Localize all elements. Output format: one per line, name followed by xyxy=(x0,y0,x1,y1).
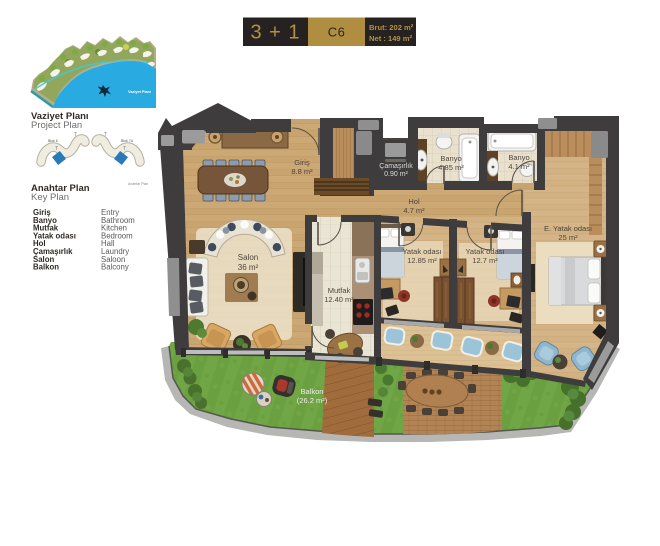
svg-text:Brut: 202 m²: Brut: 202 m² xyxy=(369,23,414,32)
svg-text:Balcony: Balcony xyxy=(101,263,129,272)
svg-text:Project Plan: Project Plan xyxy=(31,120,82,131)
svg-text:Mutfak: Mutfak xyxy=(328,286,351,295)
svg-text:Balkon: Balkon xyxy=(33,263,59,272)
svg-text:T: T xyxy=(104,132,107,138)
svg-text:T: T xyxy=(74,132,77,138)
svg-text:Vaziyet Planı: Vaziyet Planı xyxy=(128,90,151,94)
svg-text:25 m²: 25 m² xyxy=(558,233,578,242)
svg-text:Balkon: Balkon xyxy=(301,387,324,396)
svg-text:T: T xyxy=(123,146,126,152)
svg-text:8.8 m²: 8.8 m² xyxy=(291,167,313,176)
svg-text:(26.2 m²): (26.2 m²) xyxy=(297,396,328,405)
svg-text:T: T xyxy=(55,146,58,152)
svg-text:36 m²: 36 m² xyxy=(238,263,259,272)
svg-text:Yatak odası: Yatak odası xyxy=(465,247,504,256)
svg-text:4.85 m²: 4.85 m² xyxy=(438,163,464,172)
svg-text:C6: C6 xyxy=(328,25,346,40)
svg-text:Çamaşırlık: Çamaşırlık xyxy=(379,163,413,170)
svg-text:Key Plan: Key Plan xyxy=(31,192,69,203)
svg-text:Anahtar Plan: Anahtar Plan xyxy=(128,182,148,186)
svg-text:E. Yatak odası: E. Yatak odası xyxy=(544,224,592,233)
svg-text:Salon: Salon xyxy=(238,253,258,262)
svg-text:Giriş: Giriş xyxy=(294,158,310,167)
svg-text:0.90 m²: 0.90 m² xyxy=(384,171,408,178)
svg-text:4.1 m²: 4.1 m² xyxy=(508,162,530,171)
svg-text:12.85 m²: 12.85 m² xyxy=(407,256,437,265)
svg-text:Blok 7A: Blok 7A xyxy=(121,139,134,143)
svg-text:Hol: Hol xyxy=(408,197,420,206)
svg-text:Net : 149 m²: Net : 149 m² xyxy=(369,34,413,43)
svg-text:Blok 6: Blok 6 xyxy=(48,139,58,143)
svg-text:Banyo: Banyo xyxy=(440,154,461,163)
svg-text:4.7 m²: 4.7 m² xyxy=(403,206,425,215)
svg-text:12.7 m²: 12.7 m² xyxy=(472,256,498,265)
svg-text:Banyo: Banyo xyxy=(508,153,529,162)
svg-text:12.40 m²: 12.40 m² xyxy=(324,295,354,304)
svg-text:3 + 1: 3 + 1 xyxy=(250,22,300,44)
svg-text:Yatak odası: Yatak odası xyxy=(402,247,441,256)
